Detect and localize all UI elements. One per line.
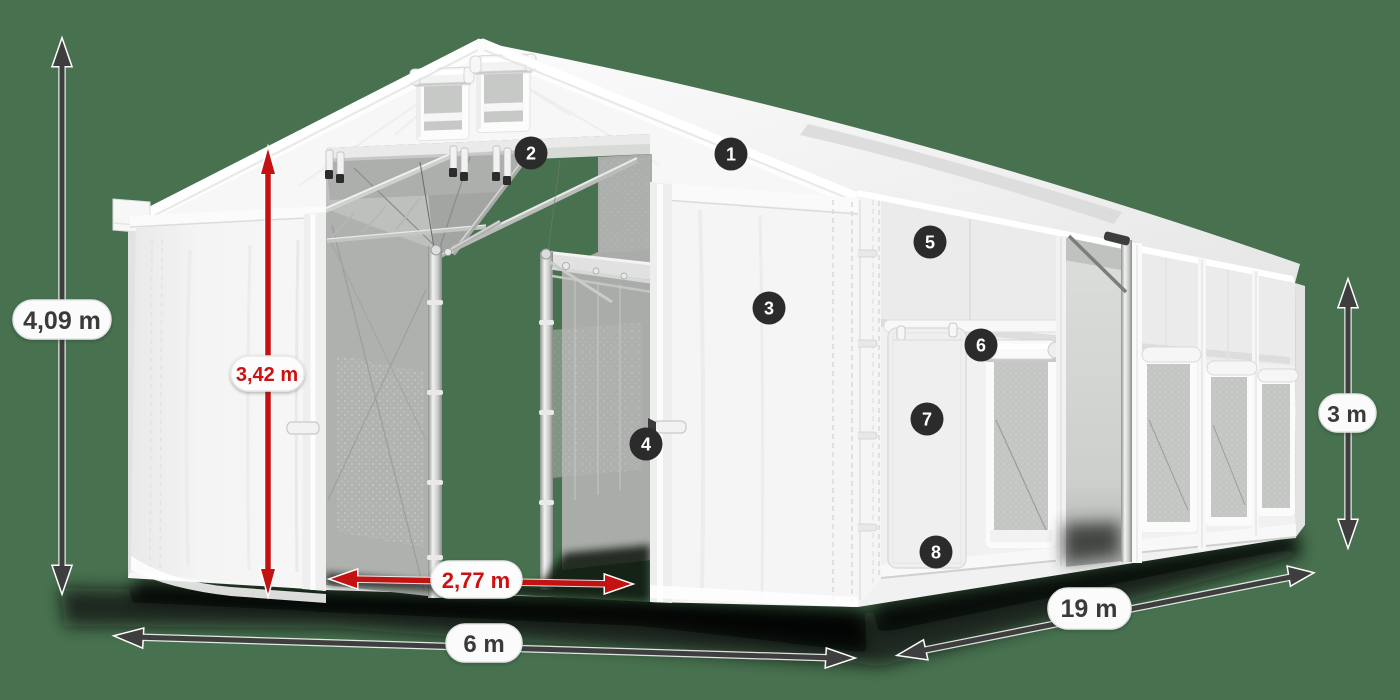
svg-text:8: 8 xyxy=(931,543,941,563)
svg-text:19 m: 19 m xyxy=(1061,595,1118,623)
svg-text:3 m: 3 m xyxy=(1327,401,1367,427)
svg-text:3,42 m: 3,42 m xyxy=(236,364,298,386)
svg-text:1: 1 xyxy=(726,145,736,165)
svg-text:7: 7 xyxy=(922,410,932,430)
svg-text:2,77 m: 2,77 m xyxy=(442,568,511,593)
svg-text:2: 2 xyxy=(526,144,536,164)
svg-text:6 m: 6 m xyxy=(463,631,504,658)
svg-text:3: 3 xyxy=(764,299,774,319)
svg-text:4,09 m: 4,09 m xyxy=(23,307,101,335)
svg-text:4: 4 xyxy=(641,435,651,455)
svg-text:5: 5 xyxy=(925,233,935,253)
svg-text:6: 6 xyxy=(976,336,986,356)
